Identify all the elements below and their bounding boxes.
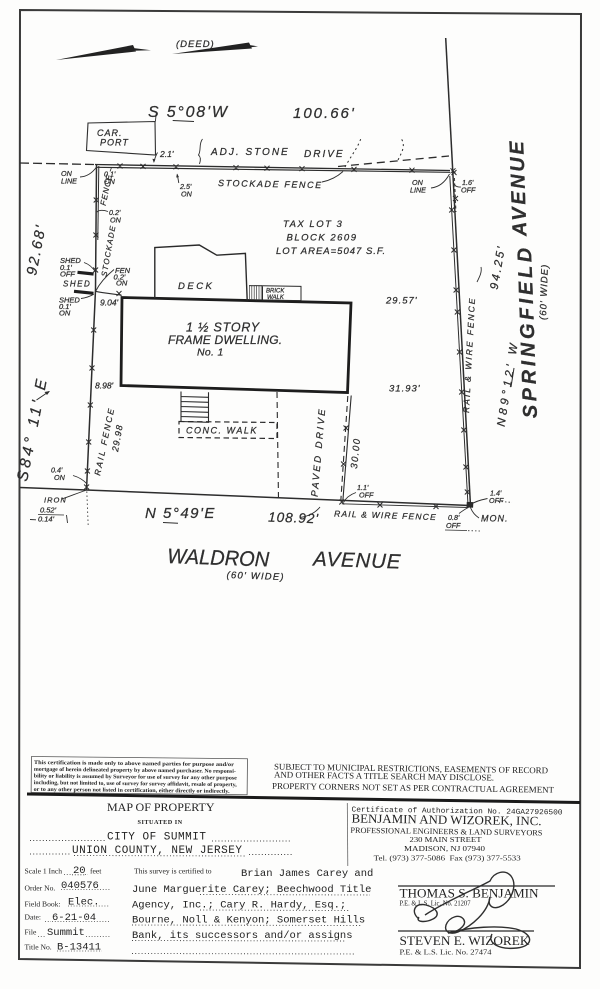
svg-text:(DEED): (DEED) bbox=[176, 39, 215, 50]
svg-text:DRIVE: DRIVE bbox=[304, 149, 345, 160]
svg-text:TAX LOT 3: TAX LOT 3 bbox=[283, 219, 343, 230]
svg-text:OFF: OFF bbox=[359, 491, 374, 500]
svg-text:WALDRON: WALDRON bbox=[167, 545, 271, 572]
svg-text:This survey is certified to: This survey is certified to bbox=[134, 867, 212, 876]
svg-text:Title No.: Title No. bbox=[25, 943, 52, 952]
svg-text:31.93': 31.93' bbox=[389, 384, 421, 395]
svg-text:N 5°49'E: N 5°49'E bbox=[145, 505, 216, 522]
svg-text:Date:: Date: bbox=[25, 913, 41, 922]
svg-text:MAP OF PROPERTY: MAP OF PROPERTY bbox=[107, 800, 215, 814]
svg-text:LINE: LINE bbox=[61, 177, 77, 186]
svg-text:FRAME DWELLING.: FRAME DWELLING. bbox=[168, 333, 282, 347]
svg-text:ON: ON bbox=[54, 473, 66, 482]
svg-text:Order No.: Order No. bbox=[25, 884, 56, 893]
svg-text:Brian James Carey and: Brian James Carey and bbox=[241, 868, 373, 880]
svg-text:Summit: Summit bbox=[47, 927, 85, 939]
svg-text:MON.: MON. bbox=[481, 514, 509, 524]
svg-text:ON: ON bbox=[110, 216, 122, 225]
svg-text:(60' WIDE): (60' WIDE) bbox=[538, 264, 551, 321]
svg-text:DECK: DECK bbox=[178, 281, 214, 292]
svg-text:9.04': 9.04' bbox=[100, 298, 119, 308]
svg-text:0.14': 0.14' bbox=[38, 515, 55, 524]
svg-text:CAR.: CAR. bbox=[97, 128, 123, 138]
svg-text:Tel. (973) 377-5086 Fax (973): Tel. (973) 377-5086 Fax (973) 377-5533 bbox=[374, 853, 521, 862]
svg-text:CONC. WALK: CONC. WALK bbox=[186, 426, 258, 436]
svg-text:No. 1: No. 1 bbox=[197, 347, 224, 359]
svg-text:OFF: OFF bbox=[489, 496, 504, 505]
svg-text:Field Book:: Field Book: bbox=[25, 900, 61, 909]
svg-text:040576: 040576 bbox=[61, 880, 99, 892]
svg-text:100.66': 100.66' bbox=[293, 105, 356, 122]
svg-text:UNION COUNTY, NEW JERSEY: UNION COUNTY, NEW JERSEY bbox=[72, 845, 242, 857]
svg-text:PORT: PORT bbox=[100, 138, 129, 148]
svg-text:IRON: IRON bbox=[44, 496, 67, 505]
svg-text:ON: ON bbox=[181, 190, 193, 199]
svg-text:6-21-04: 6-21-04 bbox=[52, 912, 96, 924]
svg-text:LOT AREA=5047 S.F.: LOT AREA=5047 S.F. bbox=[276, 246, 386, 257]
svg-text:BRICK: BRICK bbox=[266, 289, 285, 295]
svg-text:SHED: SHED bbox=[63, 280, 91, 289]
svg-text:20: 20 bbox=[73, 865, 86, 877]
svg-text:ON: ON bbox=[116, 279, 128, 288]
svg-text:AVENUE: AVENUE bbox=[311, 547, 402, 573]
svg-text:OFF: OFF bbox=[60, 270, 75, 279]
svg-text:ON: ON bbox=[59, 309, 71, 318]
svg-text:File: File bbox=[25, 928, 37, 937]
svg-text:WALK: WALK bbox=[267, 295, 285, 301]
svg-text:MADISON, NJ 07940: MADISON, NJ 07940 bbox=[404, 844, 485, 853]
svg-text:BLOCK 2609: BLOCK 2609 bbox=[287, 233, 358, 244]
svg-text:OFF: OFF bbox=[446, 521, 461, 530]
svg-text:(60' WIDE): (60' WIDE) bbox=[226, 570, 285, 583]
svg-text:0.52': 0.52' bbox=[40, 506, 57, 515]
svg-text:S 5°08'W: S 5°08'W bbox=[148, 104, 229, 121]
svg-text:Bank, its successors and/or as: Bank, its successors and/or assigns bbox=[132, 930, 353, 942]
svg-text:AVENUE: AVENUE bbox=[506, 138, 531, 237]
svg-text:8.98': 8.98' bbox=[95, 381, 114, 391]
svg-text:Bourne, Noll & Kenyon; Somerse: Bourne, Noll & Kenyon; Somerset Hills bbox=[132, 915, 365, 927]
svg-text:108.92': 108.92' bbox=[268, 510, 319, 527]
svg-text:Scale 1 Inch: Scale 1 Inch bbox=[25, 867, 63, 876]
svg-text:STEVEN E. WIZOREK: STEVEN E. WIZOREK bbox=[400, 933, 531, 948]
svg-text:feet: feet bbox=[90, 867, 102, 876]
svg-text:June Marguerite Carey; Beechwo: June Marguerite Carey; Beechwood Title bbox=[132, 884, 371, 896]
svg-text:29.57': 29.57' bbox=[385, 296, 418, 307]
svg-text:LINE: LINE bbox=[410, 186, 426, 195]
svg-text:OFF: OFF bbox=[461, 186, 476, 195]
svg-text:ADJ. STONE: ADJ. STONE bbox=[210, 147, 290, 158]
svg-text:P.E. & L.S. Lic. No. 21207: P.E. & L.S. Lic. No. 21207 bbox=[400, 899, 471, 908]
svg-text:B-13411: B-13411 bbox=[57, 942, 101, 954]
svg-text:CITY OF SUMMIT: CITY OF SUMMIT bbox=[107, 832, 206, 844]
svg-text:P.E. & L.S. Lic. No. 27474: P.E. & L.S. Lic. No. 27474 bbox=[400, 948, 492, 957]
svg-text:SITUATED IN: SITUATED IN bbox=[138, 819, 183, 826]
svg-text:Elec.: Elec. bbox=[68, 897, 100, 909]
svg-text:230 MAIN STREET: 230 MAIN STREET bbox=[410, 835, 482, 844]
svg-text:2.1': 2.1' bbox=[159, 149, 174, 159]
